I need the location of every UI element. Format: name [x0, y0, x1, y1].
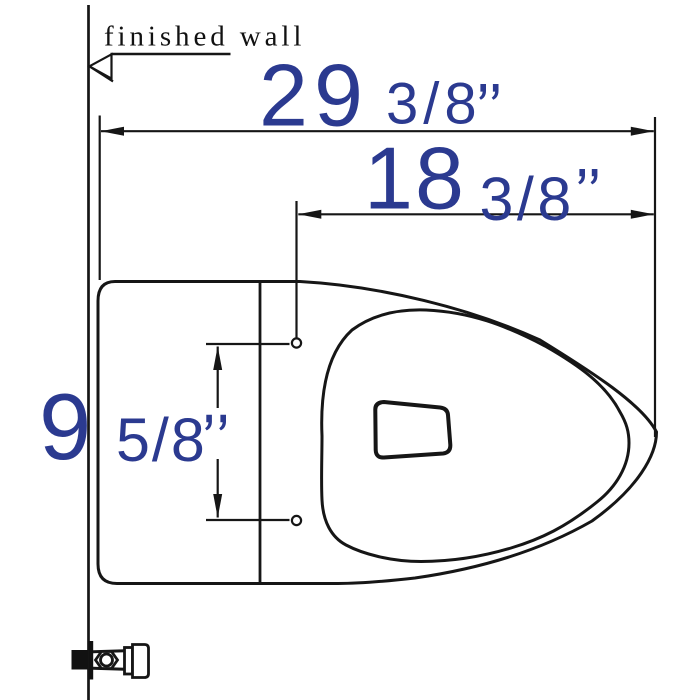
svg-text:3/8: 3/8	[480, 165, 575, 233]
svg-text:9: 9	[39, 374, 91, 479]
svg-text:5/8: 5/8	[116, 406, 207, 474]
svg-text:3/8: 3/8	[386, 72, 482, 137]
svg-text:18: 18	[364, 129, 466, 228]
svg-text:29: 29	[259, 46, 369, 145]
